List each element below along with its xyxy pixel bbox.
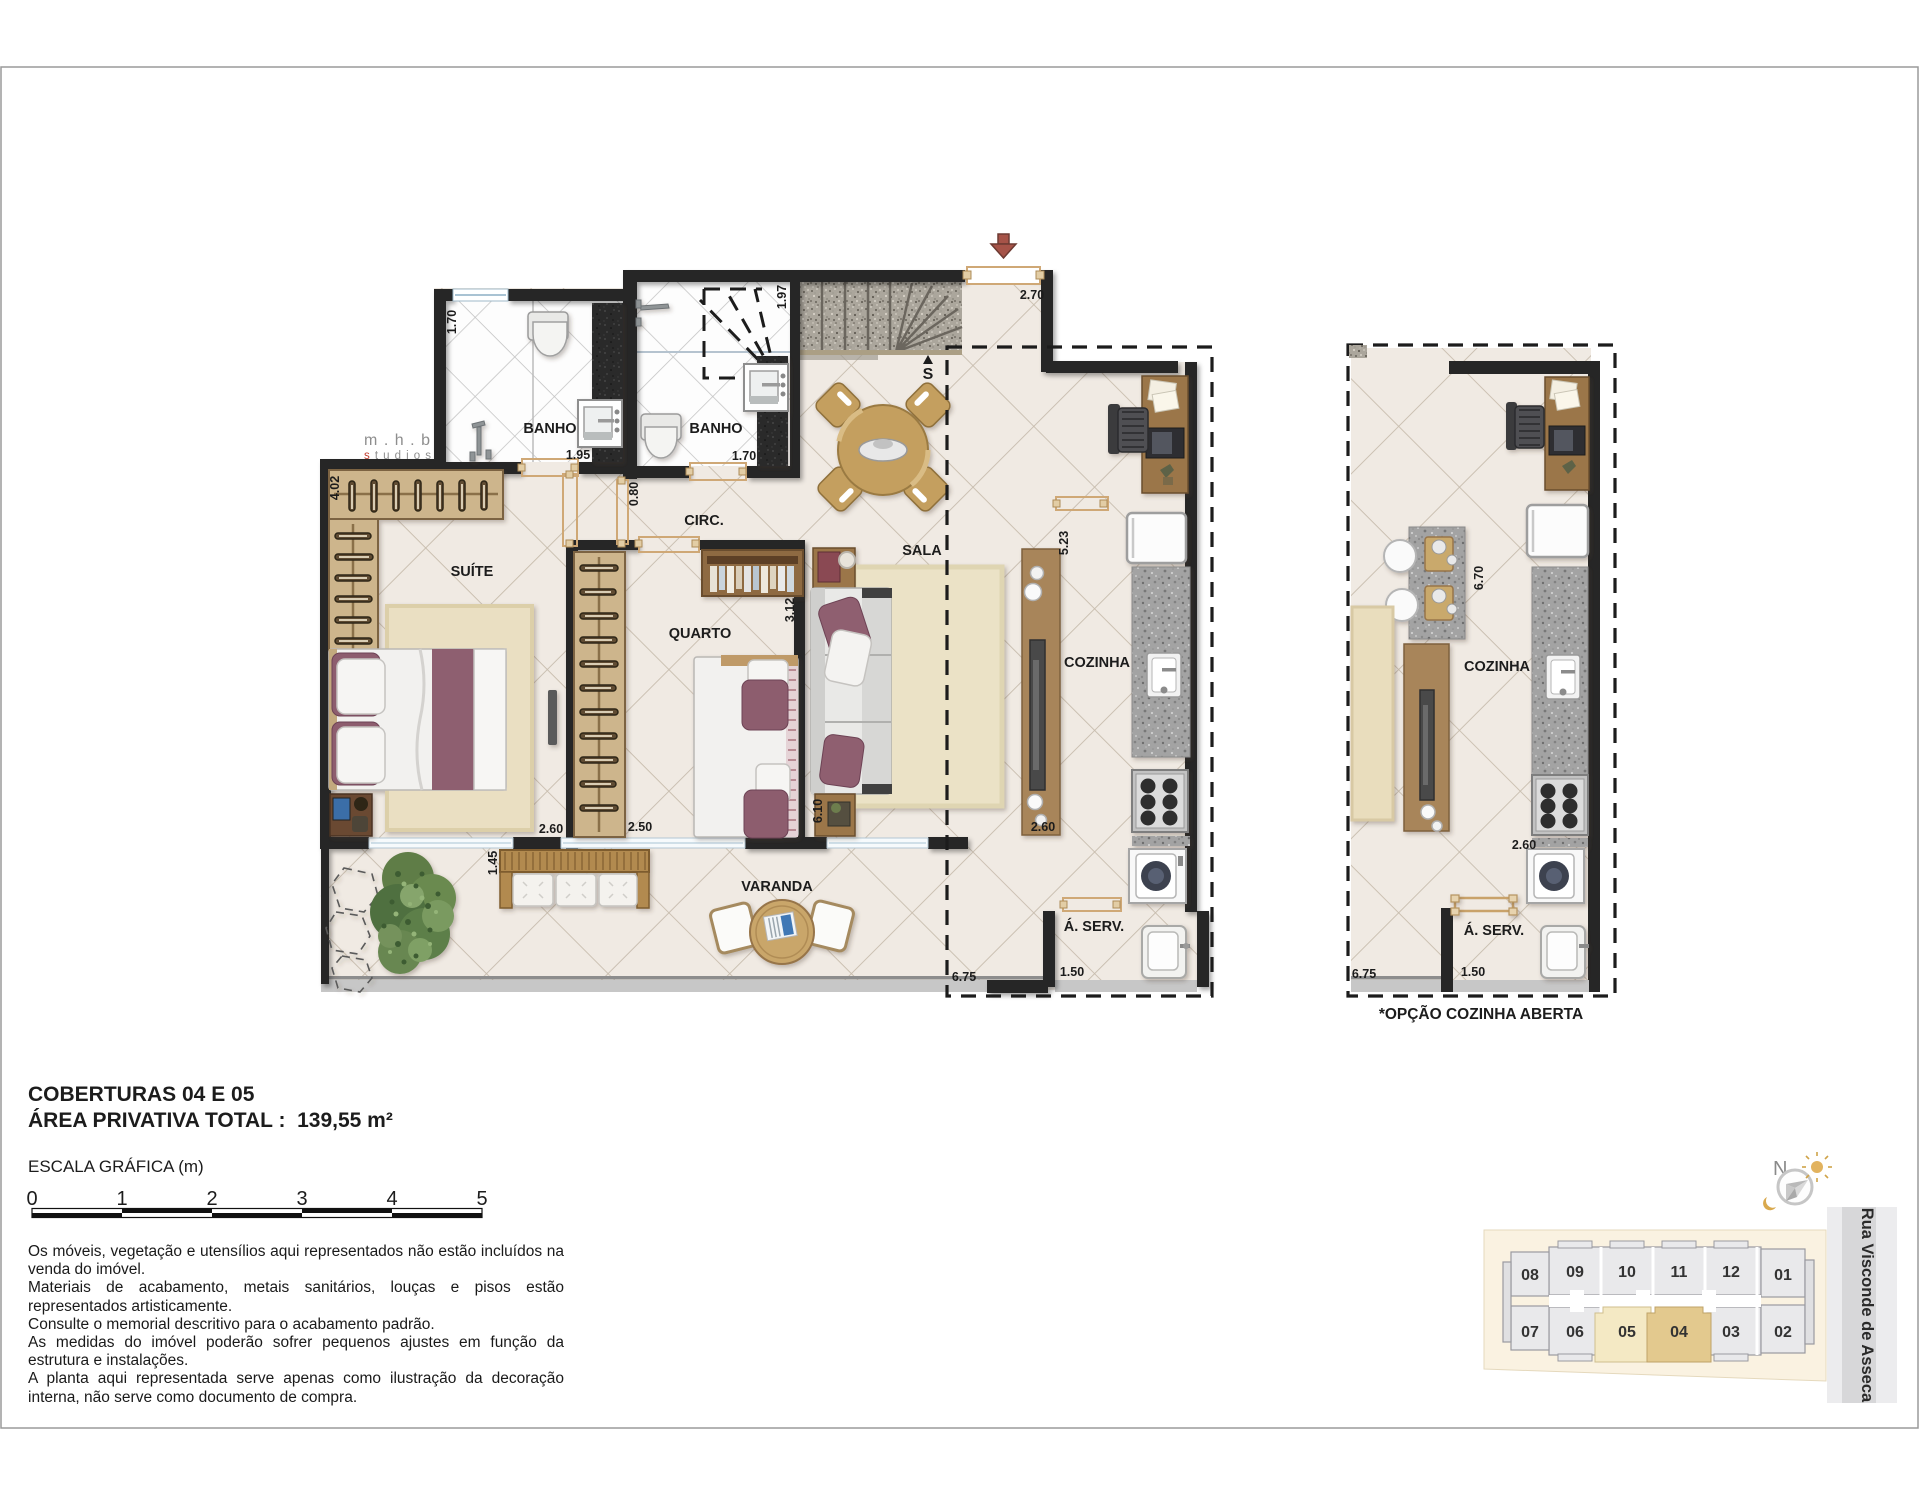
svg-text:05: 05 xyxy=(1618,1324,1636,1341)
svg-text:S: S xyxy=(923,366,934,383)
svg-text:Á. SERV.: Á. SERV. xyxy=(1464,922,1524,939)
svg-text:1.50: 1.50 xyxy=(1060,965,1084,979)
svg-text:2.70: 2.70 xyxy=(1020,288,1044,302)
svg-text:3.12: 3.12 xyxy=(783,598,797,622)
svg-text:1: 1 xyxy=(116,1188,127,1210)
svg-text:6.10: 6.10 xyxy=(811,799,825,823)
svg-text:COZINHA: COZINHA xyxy=(1464,659,1531,675)
svg-text:COZINHA: COZINHA xyxy=(1064,655,1131,671)
svg-text:QUARTO: QUARTO xyxy=(669,626,732,642)
svg-text:2.60: 2.60 xyxy=(539,822,563,836)
svg-text:1.95: 1.95 xyxy=(566,448,590,462)
svg-text:1.45: 1.45 xyxy=(486,851,500,875)
svg-text:BANHO: BANHO xyxy=(523,421,576,437)
svg-text:COBERTURAS 04 E 05: COBERTURAS 04 E 05 xyxy=(28,1083,255,1106)
svg-text:m . h . b: m . h . b xyxy=(364,432,430,449)
svg-text:11: 11 xyxy=(1671,1264,1688,1281)
svg-text:*OPÇÃO COZINHA ABERTA: *OPÇÃO COZINHA ABERTA xyxy=(1379,1005,1583,1023)
svg-text:3: 3 xyxy=(296,1188,307,1210)
svg-text:6.70: 6.70 xyxy=(1472,566,1486,590)
svg-text:0: 0 xyxy=(26,1188,37,1210)
svg-text:12: 12 xyxy=(1722,1264,1740,1281)
svg-text:03: 03 xyxy=(1722,1324,1740,1341)
svg-text:2.50: 2.50 xyxy=(628,820,652,834)
svg-text:CIRC.: CIRC. xyxy=(684,513,723,529)
svg-text:VARANDA: VARANDA xyxy=(741,879,813,895)
svg-text:SALA: SALA xyxy=(902,543,942,559)
svg-text:08: 08 xyxy=(1521,1267,1539,1284)
svg-text:BANHO: BANHO xyxy=(689,421,742,437)
svg-text:5.23: 5.23 xyxy=(1057,531,1071,555)
svg-text:s t u d i o s: s t u d i o s xyxy=(364,450,431,462)
svg-text:07: 07 xyxy=(1521,1324,1539,1341)
svg-text:5: 5 xyxy=(476,1188,487,1210)
svg-text:6.75: 6.75 xyxy=(1352,967,1376,981)
svg-text:Á. SERV.: Á. SERV. xyxy=(1064,918,1124,935)
svg-text:6.75: 6.75 xyxy=(952,970,976,984)
svg-text:1.97: 1.97 xyxy=(775,285,789,309)
svg-text:1.70: 1.70 xyxy=(445,310,459,334)
svg-text:2.60: 2.60 xyxy=(1031,820,1055,834)
svg-text:SUÍTE: SUÍTE xyxy=(451,563,494,580)
svg-text:2.60: 2.60 xyxy=(1512,838,1536,852)
svg-text:1.50: 1.50 xyxy=(1461,965,1485,979)
svg-text:01: 01 xyxy=(1774,1267,1792,1284)
svg-text:4: 4 xyxy=(386,1188,397,1210)
svg-text:04: 04 xyxy=(1670,1324,1688,1341)
svg-text:0.80: 0.80 xyxy=(627,482,641,506)
svg-text:06: 06 xyxy=(1566,1324,1584,1341)
svg-text:02: 02 xyxy=(1774,1324,1792,1341)
svg-text:4.02: 4.02 xyxy=(328,476,342,500)
svg-text:2: 2 xyxy=(206,1188,217,1210)
svg-text:1.70: 1.70 xyxy=(732,449,756,463)
svg-text:09: 09 xyxy=(1566,1264,1584,1281)
svg-text:ÁREA PRIVATIVA TOTAL : 139,55: ÁREA PRIVATIVA TOTAL : 139,55 m² xyxy=(28,1109,393,1132)
svg-text:ESCALA GRÁFICA (m): ESCALA GRÁFICA (m) xyxy=(28,1157,204,1176)
svg-text:Rua Visconde de Asseca: Rua Visconde de Asseca xyxy=(1858,1208,1876,1403)
svg-text:10: 10 xyxy=(1618,1264,1636,1281)
